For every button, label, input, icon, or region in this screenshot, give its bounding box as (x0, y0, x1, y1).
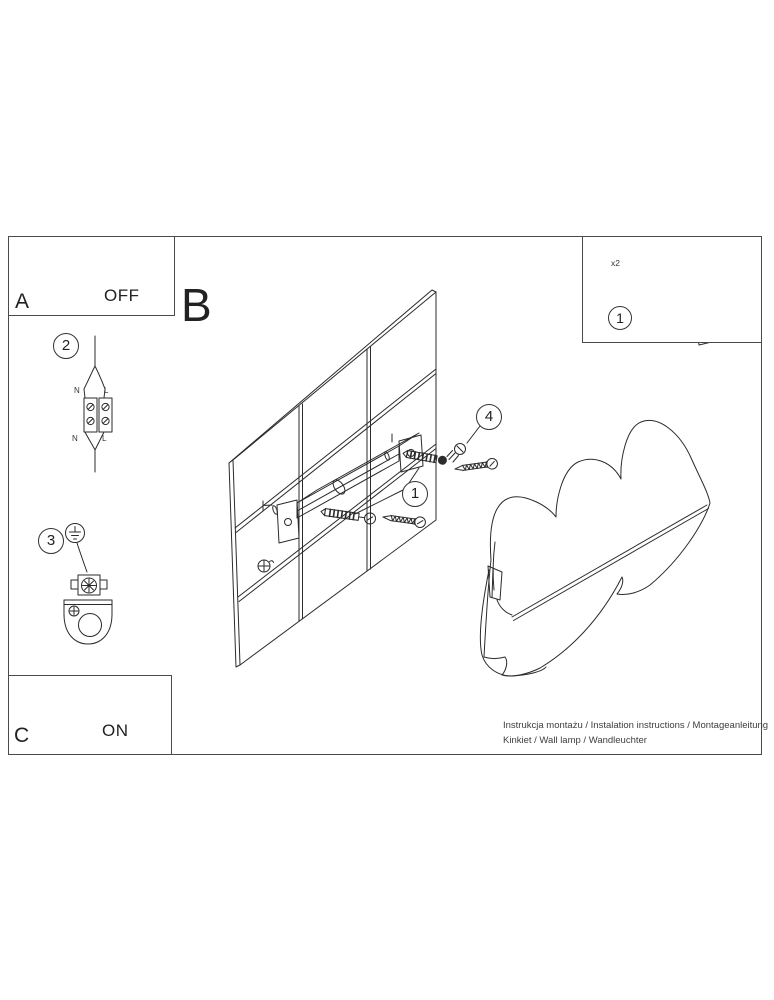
panel-power-off (8, 236, 175, 316)
lamp-bolt-icon (447, 444, 466, 463)
callout-1-badge: 1 (402, 481, 428, 507)
tiled-wall-drawing (229, 290, 436, 667)
footer-text: Instrukcja montażu / Instalation instruc… (503, 719, 768, 748)
instruction-line-art (0, 0, 774, 1000)
panel-c-label: C (14, 725, 29, 746)
mounting-screw-icon (382, 512, 426, 528)
callout-4-badge: 4 (476, 404, 502, 430)
anchor-quantity-label: x2 (611, 258, 620, 268)
power-off-label: OFF (104, 286, 140, 306)
panel-parts-list (582, 236, 762, 343)
step-3-badge: 3 (38, 528, 64, 554)
instruction-sheet: A OFF C ON B 2 3 1 4 1 N L N L x2 Instru… (0, 0, 774, 1000)
lamp-ground-terminal-icon (64, 575, 112, 644)
terminal-n-top-label: N (74, 386, 80, 395)
ground-symbol-icon (66, 524, 85, 543)
cloud-lamp-drawing (480, 420, 710, 676)
mounting-screw-icon (454, 458, 498, 474)
terminal-n-bottom-label: N (72, 434, 78, 443)
terminal-l-top-label: L (104, 386, 108, 395)
phillips-screw-icon (258, 560, 274, 572)
mounting-bracket-drawing (263, 433, 423, 543)
parts-callout-badge: 1 (608, 306, 632, 330)
step-2-badge: 2 (53, 333, 79, 359)
section-b-label: B (181, 282, 212, 328)
wire-terminal-block-icon (84, 336, 112, 472)
footer-line-2: Kinkiet / Wall lamp / Wandleuchter (503, 734, 768, 749)
wall-anchor-left-icon (320, 506, 376, 525)
power-on-label: ON (102, 721, 129, 741)
panel-power-on (8, 675, 172, 755)
panel-a-label: A (15, 291, 29, 312)
terminal-l-bottom-label: L (102, 434, 106, 443)
ground-wire-icon (77, 543, 87, 572)
footer-line-1: Instrukcja montażu / Instalation instruc… (503, 719, 768, 734)
